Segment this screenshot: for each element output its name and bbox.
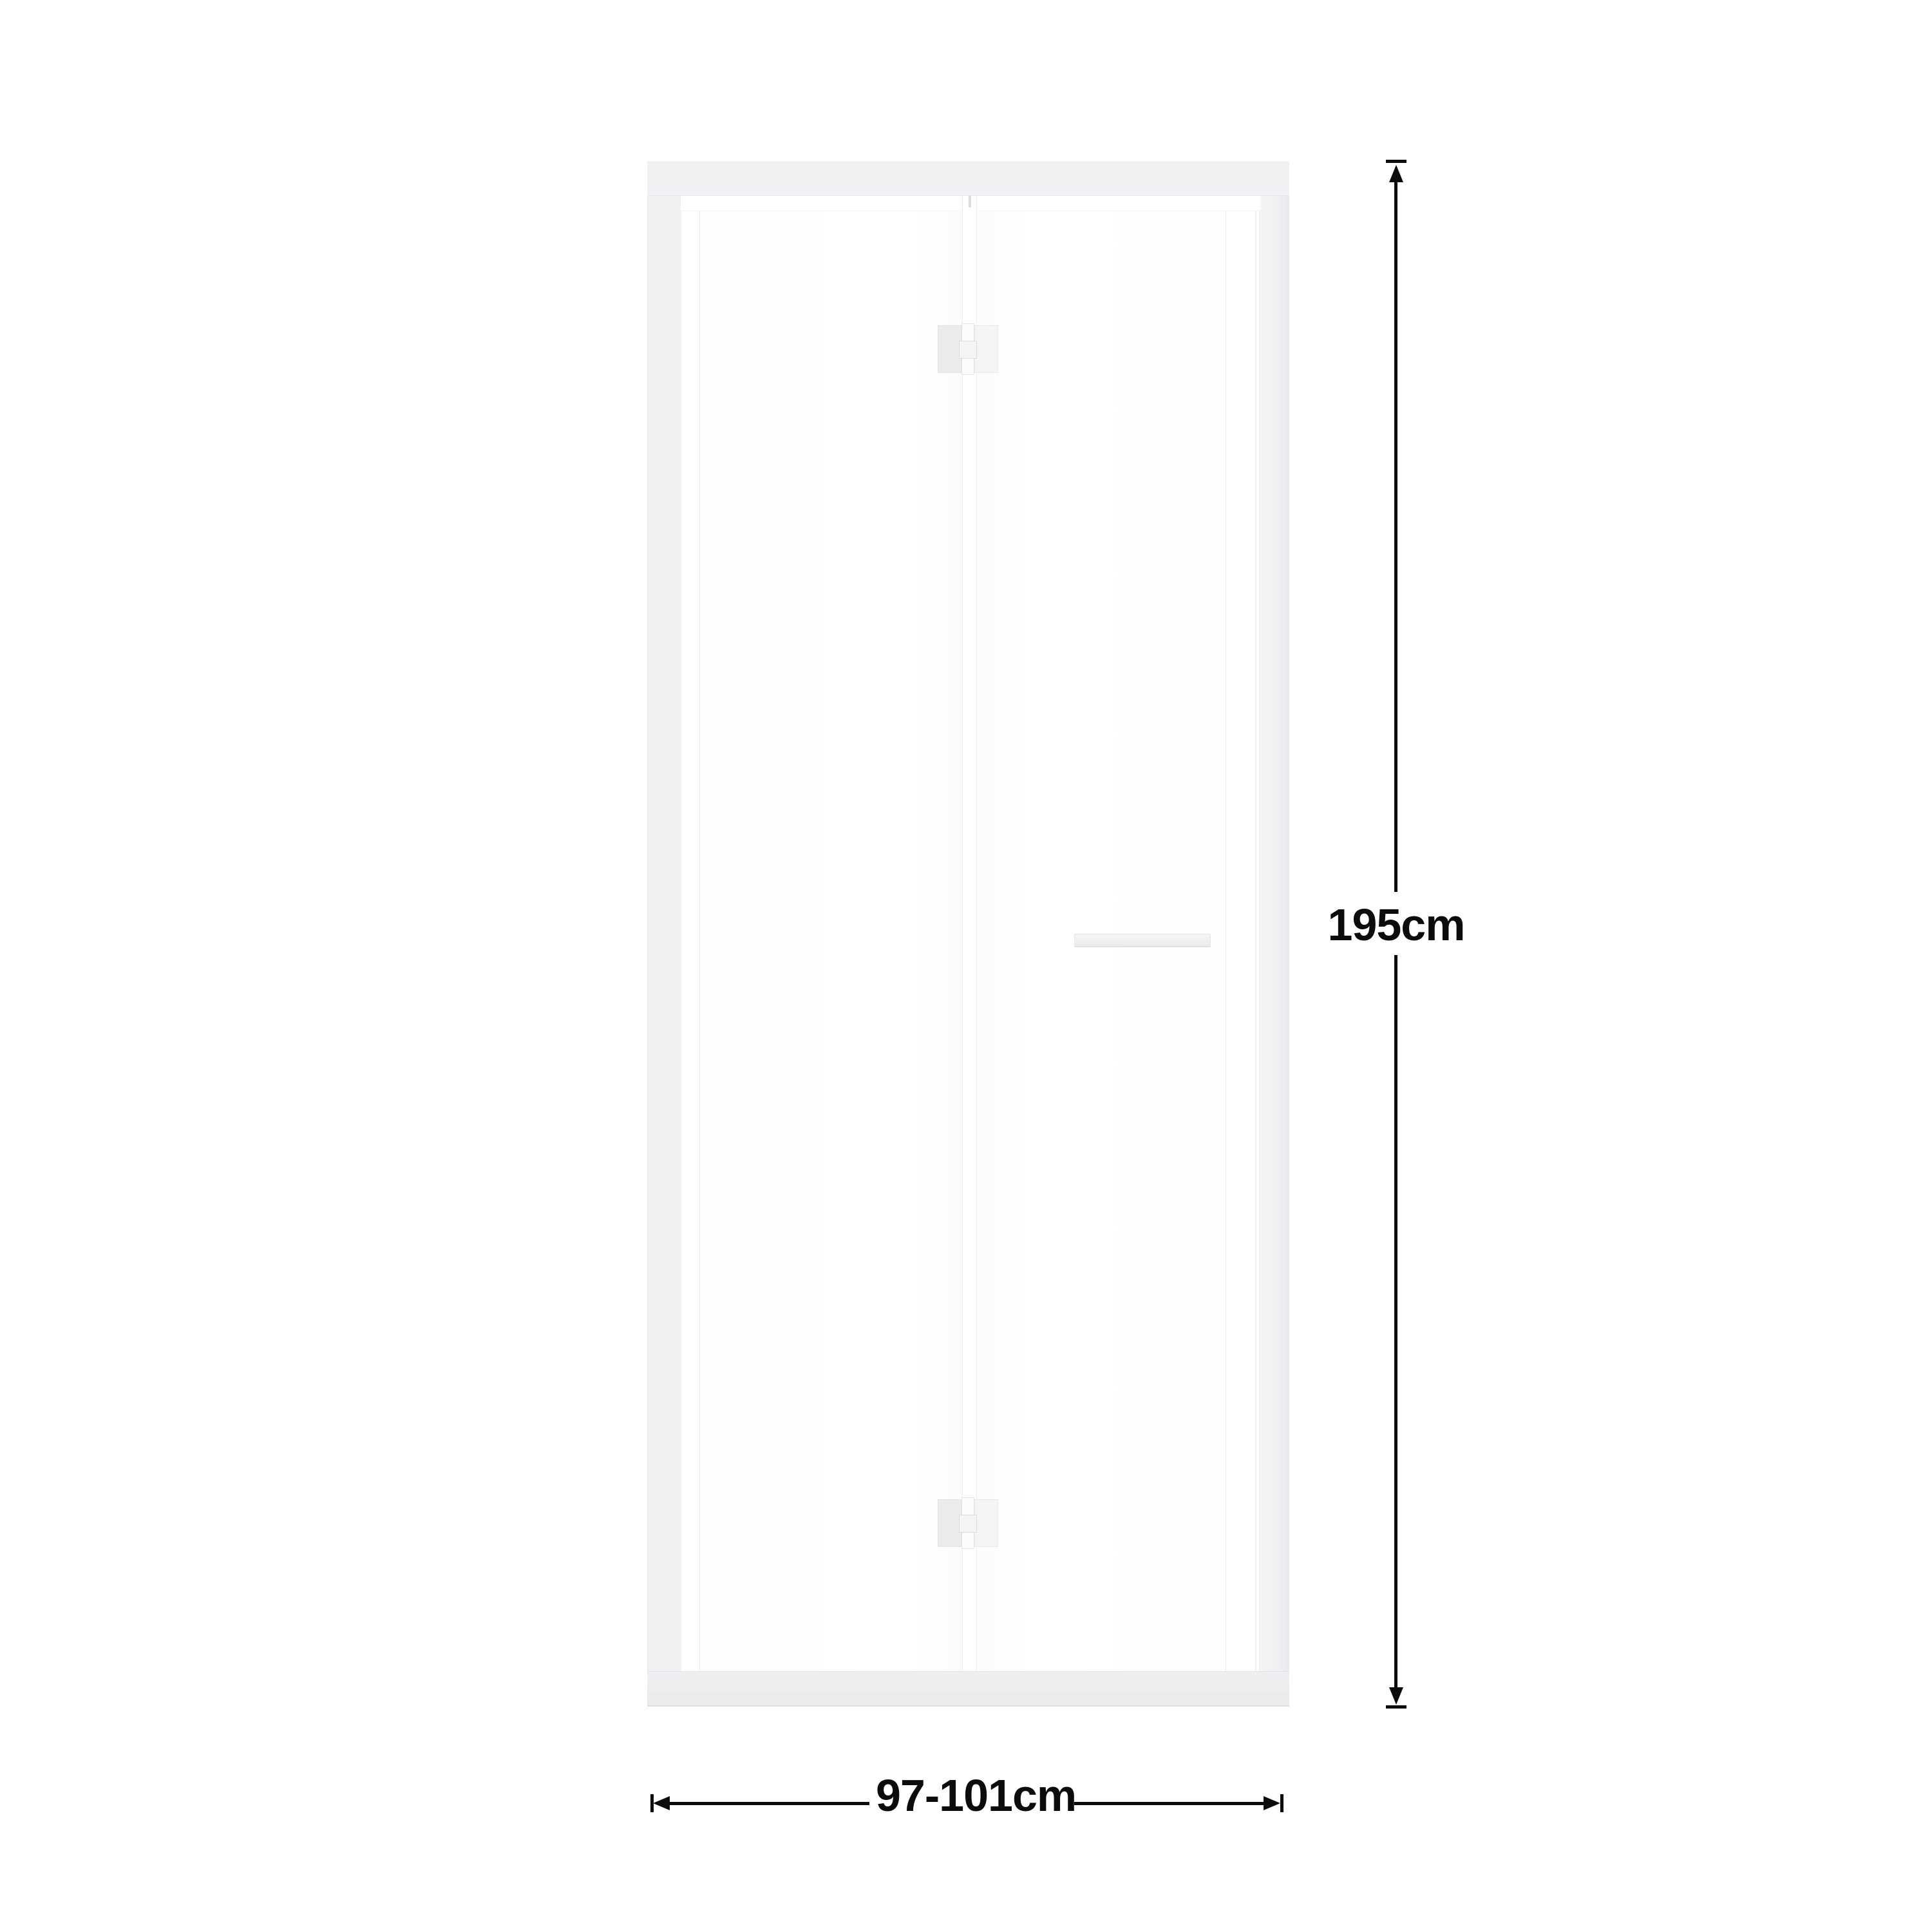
- arrow-left-icon: [653, 1796, 670, 1810]
- height-dimension-label: 195cm: [1300, 902, 1493, 948]
- hinge-right-plate: [974, 325, 998, 373]
- shower-door: [647, 161, 1289, 1707]
- door-fold-line: [962, 196, 977, 1671]
- fold-top-pivot: [969, 196, 971, 207]
- door-top-frame: [647, 161, 1289, 196]
- bottom-hinge: [938, 1499, 998, 1547]
- dimension-tick-right: [1280, 1794, 1283, 1812]
- door-bottom-frame: [647, 1671, 1289, 1707]
- width-dimension-line-left: [668, 1802, 869, 1805]
- height-dimension-line-upper: [1394, 180, 1397, 892]
- height-dimension-line-lower: [1394, 955, 1397, 1687]
- hinge-right-plate: [974, 1499, 998, 1547]
- hinge-left-plate: [938, 1499, 961, 1547]
- glass-right-seam-line: [1255, 196, 1256, 1671]
- dimension-tick-bottom: [1386, 1705, 1406, 1709]
- door-right-frame: [1260, 196, 1289, 1671]
- diagram-canvas: 195cm 97-101cm: [0, 0, 1932, 1932]
- arrow-right-icon: [1264, 1796, 1280, 1810]
- hinge-knuckle: [959, 341, 977, 359]
- hinge-left-plate: [938, 325, 961, 373]
- top-hinge: [938, 325, 998, 373]
- glass-left-seam: [681, 196, 700, 1671]
- width-dimension-line-right: [1074, 1802, 1266, 1805]
- width-dimension-label: 97-101cm: [876, 1772, 1069, 1819]
- door-handle: [1074, 934, 1211, 947]
- arrow-up-icon: [1389, 165, 1403, 182]
- arrow-down-icon: [1389, 1687, 1403, 1705]
- hinge-knuckle: [959, 1515, 977, 1533]
- dimension-tick-top: [1386, 160, 1406, 163]
- door-left-frame: [647, 196, 681, 1671]
